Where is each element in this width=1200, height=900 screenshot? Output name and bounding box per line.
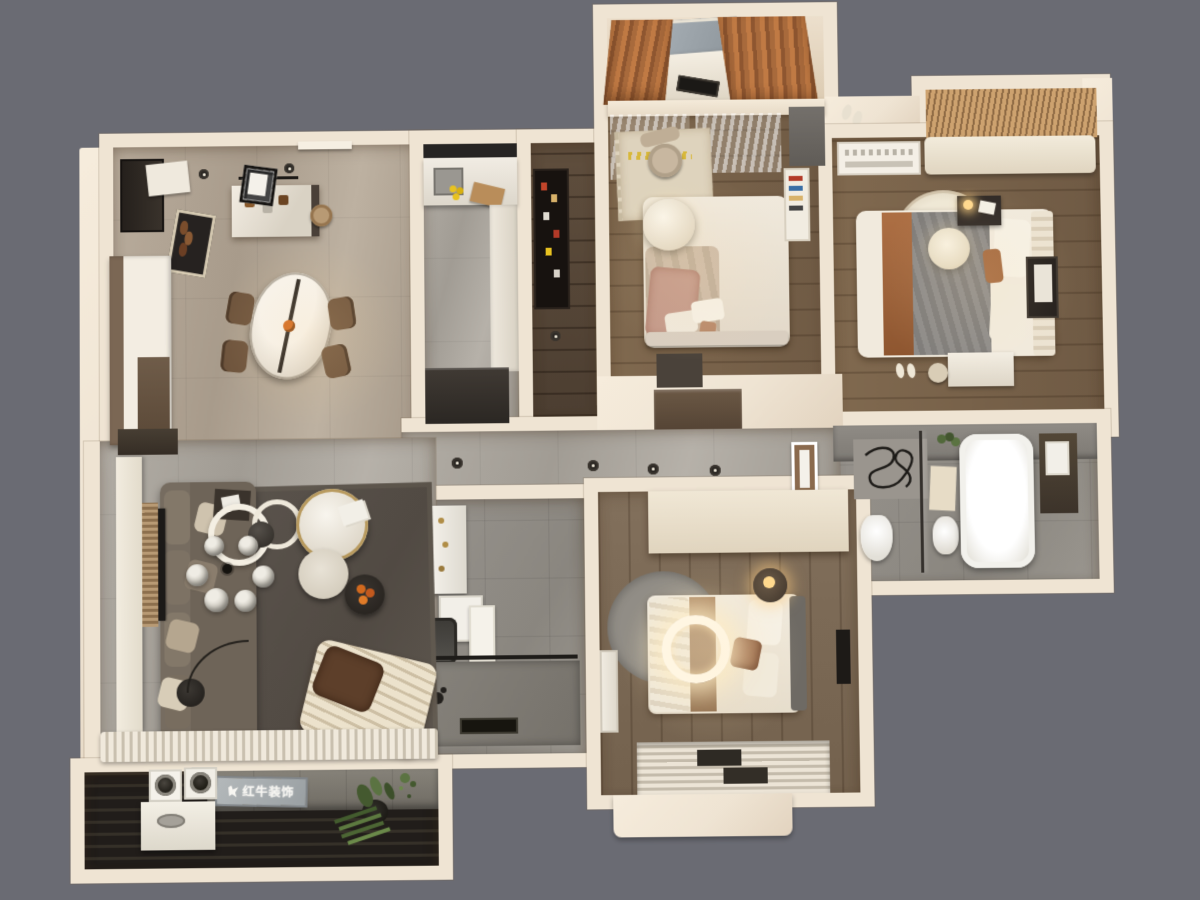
shelf-books bbox=[789, 176, 803, 181]
entry-console bbox=[145, 160, 190, 196]
ceiling-spotlight bbox=[588, 460, 599, 471]
sofa-back-cushions bbox=[164, 490, 190, 544]
chandelier-globe bbox=[252, 565, 274, 587]
fruit-on-table bbox=[357, 585, 366, 594]
wall-bay-window-bump bbox=[613, 793, 792, 837]
ceiling-spotlight bbox=[550, 331, 560, 341]
tv-upper-cabinet bbox=[118, 429, 178, 456]
master-bed-rust-stripe bbox=[882, 212, 914, 355]
wood-blinds bbox=[926, 88, 1098, 139]
floorplan-render-canvas: 红牛装饰 bbox=[0, 0, 1200, 900]
curtain-gap-dark bbox=[697, 749, 741, 766]
dresser bbox=[948, 352, 1014, 387]
ring-ceiling-light bbox=[661, 615, 730, 684]
hanging-plant bbox=[400, 773, 410, 783]
rust-curtain-left bbox=[603, 19, 673, 104]
chandelier-globe bbox=[238, 536, 258, 556]
toilet bbox=[860, 515, 893, 561]
brand-plaque: 红牛装饰 bbox=[217, 778, 306, 806]
nightstand-lamp bbox=[763, 576, 775, 588]
ceiling-spotlight bbox=[284, 163, 294, 173]
squiggle-art-svg bbox=[853, 439, 928, 500]
bath-plant bbox=[937, 434, 946, 443]
ac-vents bbox=[845, 149, 913, 156]
kitchen-sink bbox=[433, 168, 463, 196]
bath-mat bbox=[929, 466, 957, 511]
master-tv-art bbox=[1034, 264, 1053, 302]
ac-unit bbox=[837, 141, 921, 175]
window-curtain-band bbox=[100, 728, 438, 762]
wardrobe-door bbox=[656, 353, 702, 387]
rust-curtain-right bbox=[718, 16, 819, 107]
full-width-wardrobe bbox=[648, 489, 849, 553]
bottom-headboard bbox=[789, 596, 807, 711]
headboard bbox=[646, 331, 788, 346]
side-table-dark bbox=[344, 574, 384, 615]
menu-board bbox=[239, 165, 278, 207]
brand-plaque-text: 红牛装饰 bbox=[242, 785, 295, 798]
ceiling-spotlight bbox=[452, 457, 463, 468]
dryer-door bbox=[190, 772, 211, 793]
bull-icon bbox=[228, 785, 238, 797]
flat-tv bbox=[158, 509, 165, 621]
chandelier-hub bbox=[222, 564, 232, 574]
rattan-pendant bbox=[928, 228, 971, 270]
bar-stool bbox=[310, 205, 332, 227]
ceiling-spotlight bbox=[199, 169, 209, 179]
brown-cushion bbox=[729, 636, 762, 671]
nightstand-lamp-glow bbox=[963, 200, 973, 210]
ceiling-spotlight bbox=[710, 465, 721, 476]
dining-chair bbox=[225, 291, 256, 327]
ceiling-spotlight bbox=[648, 463, 659, 474]
basin bbox=[932, 516, 959, 554]
chandelier-globe bbox=[186, 564, 208, 586]
built-in-closet bbox=[654, 389, 742, 430]
lemons bbox=[450, 185, 457, 192]
gold-fixtures bbox=[438, 518, 444, 524]
round-pendant-lamp bbox=[643, 199, 695, 251]
entry-door-leaf bbox=[298, 141, 352, 149]
kitchen-backsplash bbox=[423, 143, 517, 158]
desk-chair bbox=[648, 144, 682, 178]
ac-unit-bottom bbox=[600, 650, 619, 733]
dresser-stool bbox=[928, 363, 948, 383]
bottom-tv-panel bbox=[836, 630, 851, 684]
vanity-counter bbox=[430, 505, 467, 593]
dining-chair bbox=[327, 296, 357, 331]
dining-chair bbox=[220, 339, 249, 373]
chandelier-globe bbox=[204, 536, 224, 556]
window-seat-cushion bbox=[924, 135, 1096, 174]
kitchen-side-counter bbox=[489, 205, 518, 372]
coffee-table-small bbox=[298, 549, 348, 600]
wine-display-cabinet bbox=[533, 168, 570, 309]
gray-desk bbox=[789, 107, 826, 167]
wood-slat-tv-panel bbox=[142, 503, 158, 627]
floor-drain bbox=[460, 717, 518, 734]
refrigerator bbox=[425, 367, 509, 424]
squiggle-wall-art bbox=[853, 439, 928, 500]
cabinet-bottles bbox=[541, 182, 547, 190]
chandelier-globe bbox=[234, 590, 256, 612]
fruit-bowl bbox=[283, 320, 295, 332]
framed-art bbox=[791, 442, 818, 496]
bathtub bbox=[959, 434, 1035, 569]
washer-door bbox=[155, 774, 176, 795]
tv-console bbox=[116, 457, 143, 732]
towel bbox=[1045, 441, 1070, 475]
chandelier-globe bbox=[204, 588, 228, 612]
apartment-plan: 红牛装饰 bbox=[0, 0, 1200, 900]
hanging-towel bbox=[469, 605, 496, 661]
